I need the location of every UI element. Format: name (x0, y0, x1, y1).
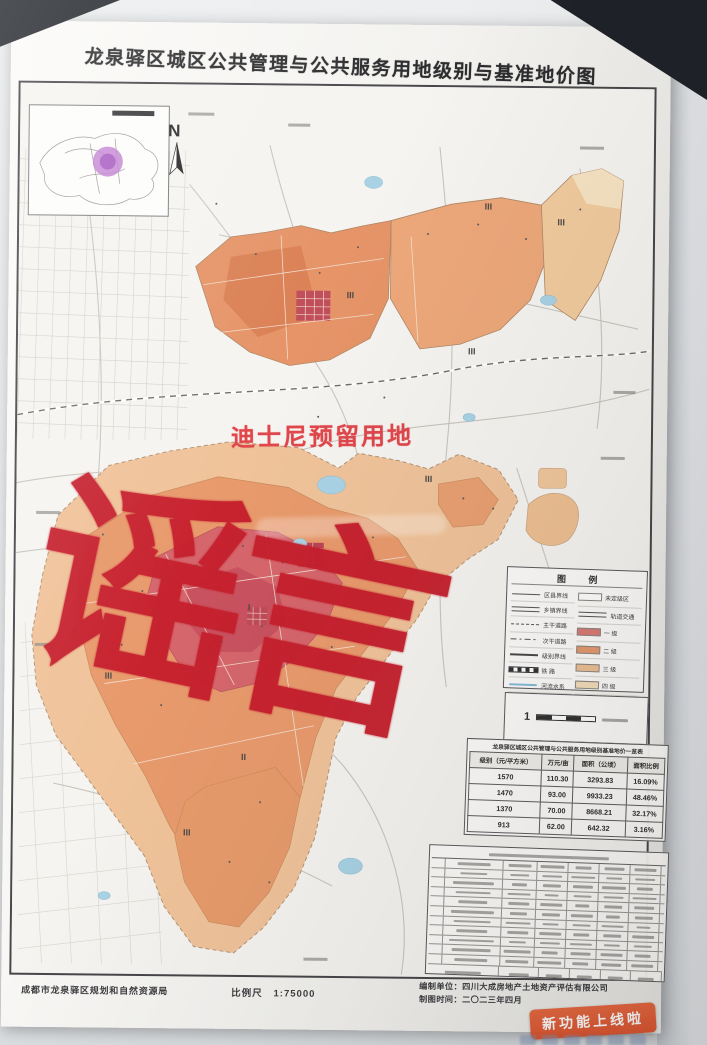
legend-color-swatch (576, 646, 600, 655)
legend-item-label: 一 级 (604, 628, 618, 638)
price-table: 级别（元/平方米）万元/亩面积（公顷）面积比例1570110.303293.83… (467, 751, 666, 839)
scale-value: 1:75000 (273, 988, 315, 999)
price-table-header: 面积比例 (627, 757, 665, 774)
legend-color-swatch (575, 663, 599, 672)
price-table-header: 万元/亩 (542, 754, 574, 771)
producer-name: 四川大成房地产土地资产评估有限公司 (462, 982, 608, 993)
scalebar-panel: 1 (503, 692, 649, 745)
legend-item-label: 铁 路 (541, 666, 555, 676)
legend-color-swatch (577, 628, 601, 637)
cutoff-watermark-text (520, 1035, 646, 1045)
price-table-cell: 8668.21 (572, 803, 626, 821)
credits-caption: 编制单位：四川大成房地产土地资产评估有限公司 制图时间：二〇二三年四月 (419, 981, 608, 1008)
legend-item: 二 级 (576, 641, 641, 661)
legend-color-swatch (578, 593, 602, 602)
price-table-cell: 913 (467, 816, 540, 835)
price-table-cell: 32.17% (626, 805, 664, 822)
disney-reserved-land-annotation: 迪士尼预留用地 (231, 416, 413, 453)
legend-right-column: 未定级区轨道交通一 级二 级三 级四 级 (575, 589, 643, 697)
price-table-panel: 龙泉驿区城区公共管理与公共服务用地级别基准地价一览表 级别（元/平方米）万元/亩… (464, 738, 669, 842)
price-table-cell: 3.16% (625, 821, 663, 838)
price-table-cell: 93.00 (541, 786, 573, 803)
price-table-cell: 16.09% (627, 773, 665, 790)
legend-item: 轨道交通 (577, 606, 642, 626)
scale-caption: 比例尺 1:75000 (231, 985, 315, 1000)
inset-locator-map (28, 105, 169, 216)
legend-color-swatch (575, 681, 599, 690)
legend-item: 一 级 (577, 624, 642, 644)
legend-item-label: 乡镇界线 (543, 605, 567, 615)
legend-item: 三 级 (575, 659, 640, 679)
legend-item-label: 二 级 (603, 646, 617, 656)
scale-label: 比例尺 (231, 988, 263, 999)
svg-text:N: N (168, 121, 180, 140)
legend-item-label: 级别界线 (542, 651, 566, 661)
price-table-cell: 3293.83 (573, 771, 627, 789)
legend-panel: 图 例 区县界线乡镇界线主干道路次干道路级别界线铁 路河流水系 未定级区轨道交通… (503, 566, 648, 693)
legend-item-label: 轨道交通 (610, 611, 634, 621)
price-table-cell: 62.00 (540, 818, 572, 835)
legend-item-label: 未定级区 (605, 593, 629, 603)
agency-caption: 成都市龙泉驿区规划和自然资源局 (21, 983, 168, 998)
map-date: 二〇二三年四月 (462, 995, 522, 1005)
legend-item: 未定级区 (578, 589, 643, 609)
legend-item-label: 四 级 (602, 681, 616, 691)
price-table-cell: 9933.23 (573, 787, 627, 805)
price-table-cell: 48.46% (626, 789, 664, 806)
price-table-cell: 110.30 (541, 770, 573, 787)
legend-item-label: 主干道路 (543, 620, 567, 630)
legend-left-column: 区县界线乡镇界线主干道路次干道路级别界线铁 路河流水系 (508, 586, 576, 694)
scalebar-one: 1 (524, 711, 531, 723)
scalebar-graphic (536, 714, 596, 723)
legend-item-label: 区县界线 (544, 590, 568, 600)
price-table-cell: 642.32 (572, 819, 626, 837)
correction-factor-table (425, 844, 669, 982)
legend-item: 四 级 (575, 677, 640, 697)
price-table-cell: 70.00 (540, 802, 572, 819)
date-label: 制图时间： (419, 995, 462, 1004)
legend-item-label: 河流水系 (541, 681, 565, 691)
legend-item-label: 三 级 (602, 664, 616, 674)
price-table-header: 面积（公顷） (574, 755, 628, 773)
legend-item-label: 次干道路 (542, 635, 566, 645)
scalebar-caption-placeholder (602, 718, 628, 722)
producer-label: 编制单位： (419, 982, 462, 991)
